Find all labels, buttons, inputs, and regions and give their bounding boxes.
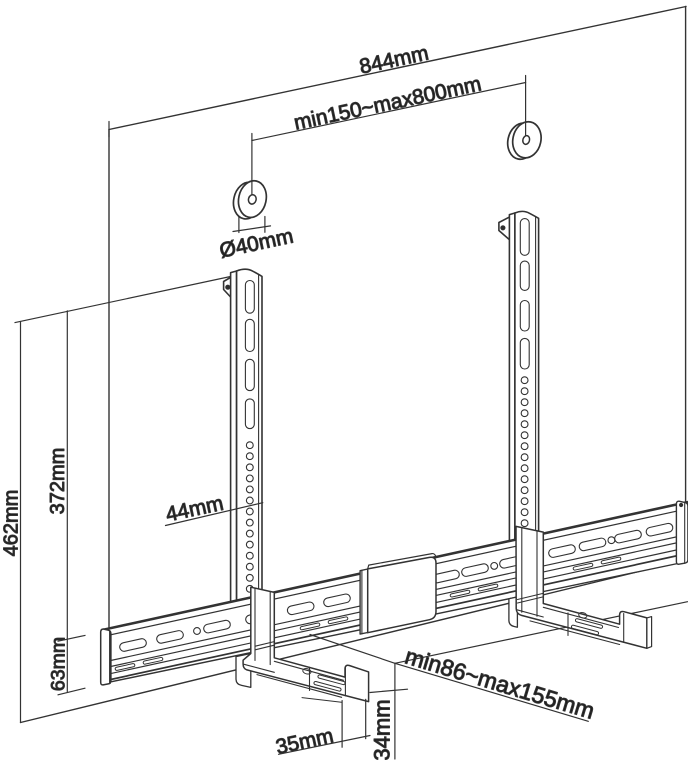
svg-text:min86~max155mm: min86~max155mm bbox=[402, 643, 597, 724]
svg-text:372mm: 372mm bbox=[47, 448, 69, 515]
svg-text:462mm: 462mm bbox=[1, 490, 23, 557]
svg-text:63mm: 63mm bbox=[48, 637, 70, 691]
svg-text:min150~max800mm: min150~max800mm bbox=[292, 73, 483, 135]
svg-text:Ø40mm: Ø40mm bbox=[218, 225, 296, 263]
svg-text:35mm: 35mm bbox=[274, 724, 336, 759]
svg-text:34mm: 34mm bbox=[370, 699, 395, 760]
svg-text:844mm: 844mm bbox=[357, 42, 430, 79]
svg-text:44mm: 44mm bbox=[164, 492, 226, 527]
